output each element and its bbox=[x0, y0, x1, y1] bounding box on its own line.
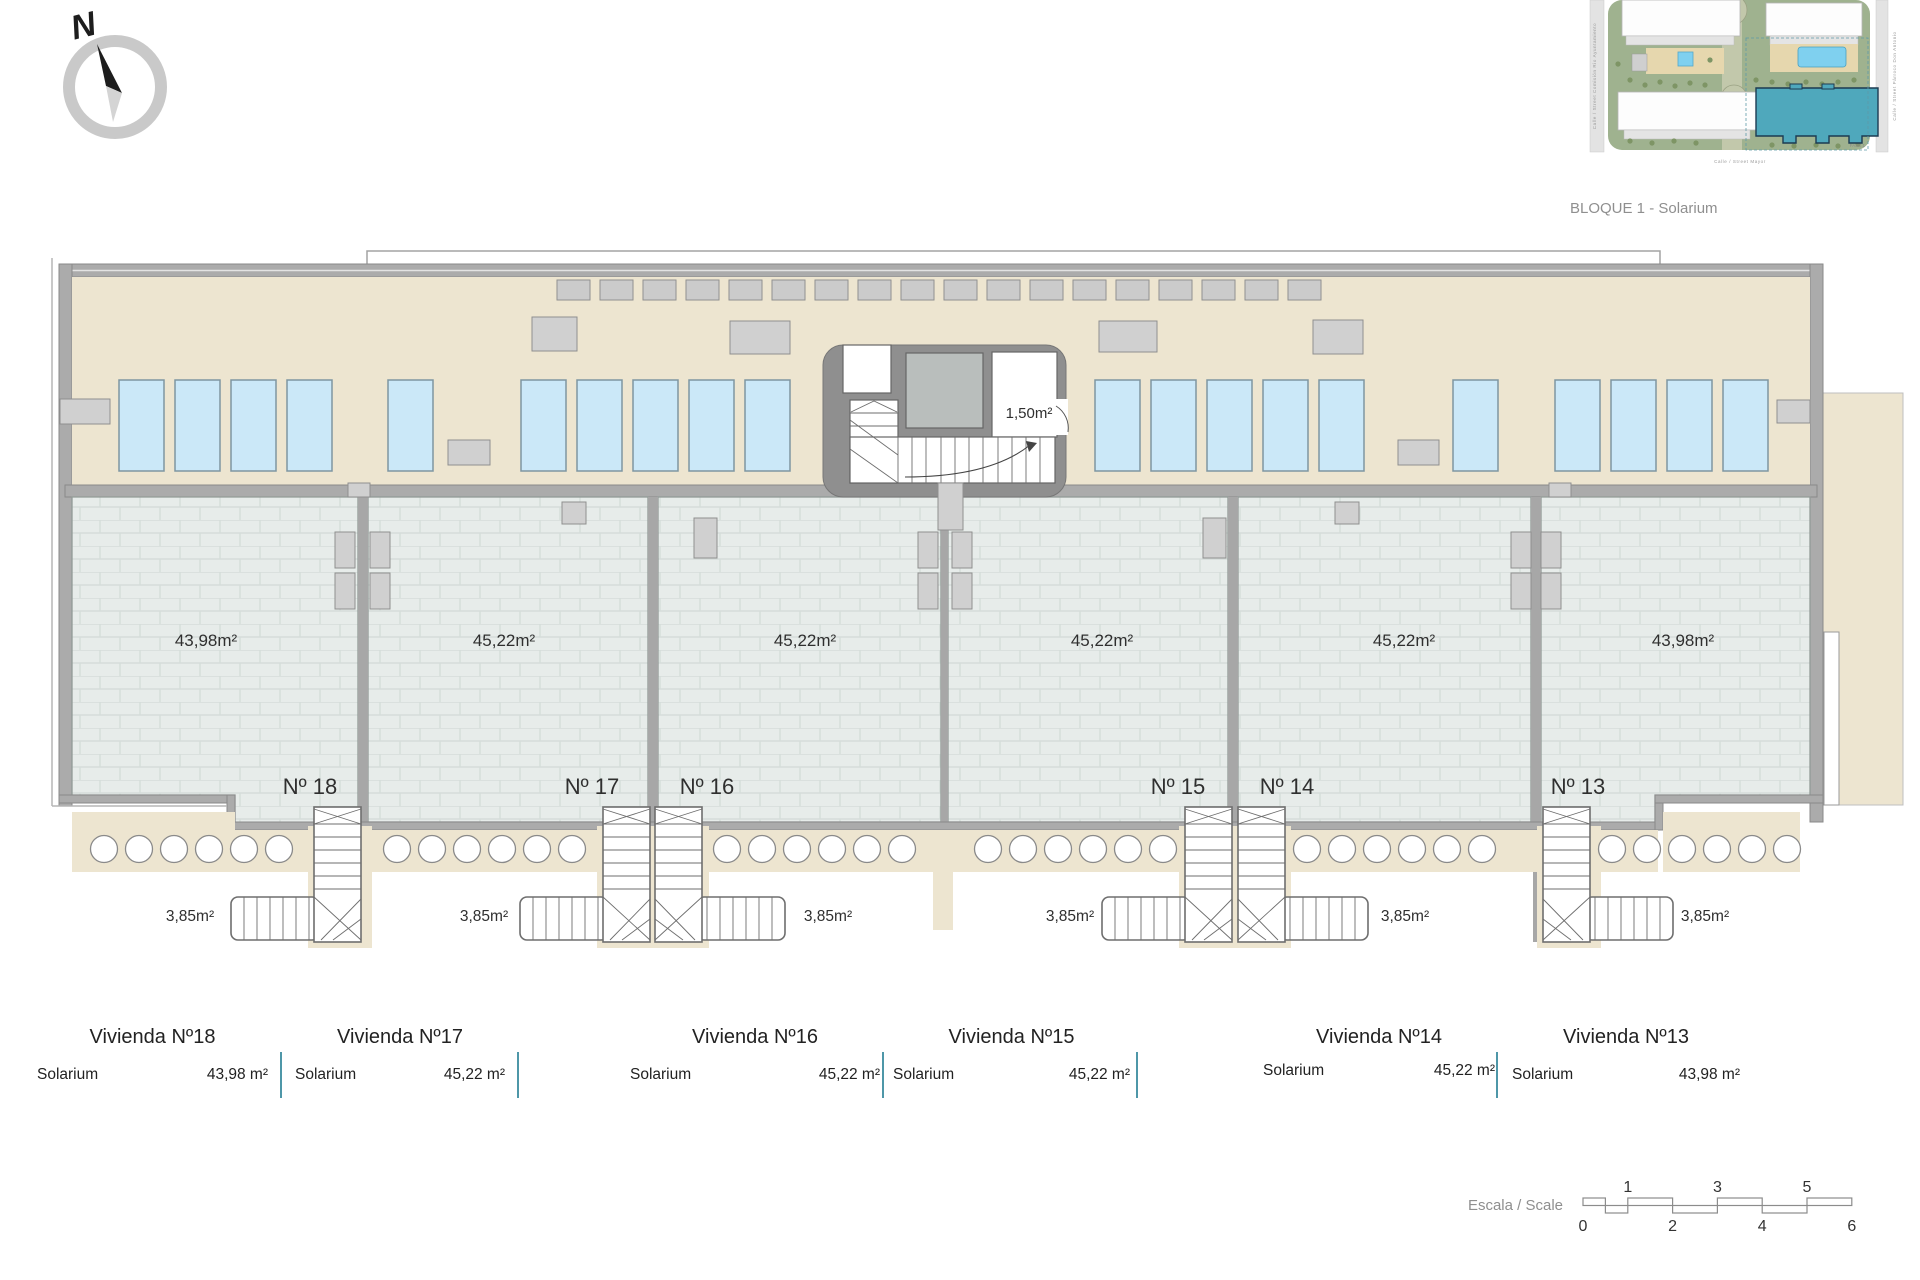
table-divider bbox=[1136, 1052, 1138, 1098]
room-area: 45,22 m² bbox=[444, 1066, 505, 1084]
table-col-vivienda-17: Vivienda Nº17 Solarium 45,22 m² bbox=[295, 1026, 505, 1088]
table-divider bbox=[517, 1052, 519, 1098]
room-label: Solarium bbox=[1512, 1066, 1573, 1084]
scale-bar: Escala / Scale 1 3 5 0 2 4 6 bbox=[1468, 1179, 1856, 1235]
scale-tick: 5 bbox=[1803, 1179, 1812, 1196]
room-area: 43,98 m² bbox=[1679, 1066, 1740, 1084]
north-compass-icon: N bbox=[67, 4, 161, 133]
table-col-vivienda-15: Vivienda Nº15 Solarium 45,22 m² bbox=[893, 1026, 1130, 1088]
vivienda-title: Vivienda Nº14 bbox=[1263, 1026, 1495, 1049]
floor-plan-drawing: N bbox=[0, 0, 1920, 1280]
room-area: 43,98 m² bbox=[207, 1066, 268, 1084]
site-plan-thumbnail: Calle / Street Mayor FASE 1 Calle / Stre… bbox=[1590, 0, 1897, 164]
thumbnail-highlighted-block bbox=[1756, 88, 1878, 143]
stair-area: 3,85m² bbox=[1046, 908, 1094, 925]
room-area: 45,22 m² bbox=[1069, 1066, 1130, 1084]
stair-area: 3,85m² bbox=[166, 908, 214, 925]
street-label-left: Calle / Street Comisión Rio Ayuntamiento bbox=[1592, 23, 1597, 129]
adjacent-terrace bbox=[1823, 393, 1903, 805]
block-caption: BLOQUE 1 - Solarium bbox=[1570, 200, 1830, 217]
area-label: 45,22m² bbox=[1373, 631, 1436, 650]
floor-plan-page: N bbox=[0, 0, 1920, 1280]
scale-tick: 3 bbox=[1713, 1179, 1722, 1196]
vivienda-title: Vivienda Nº16 bbox=[630, 1026, 880, 1049]
scale-label: Escala / Scale bbox=[1468, 1197, 1563, 1214]
area-label: 43,98m² bbox=[1652, 631, 1715, 650]
area-label: 45,22m² bbox=[774, 631, 837, 650]
room-label: Solarium bbox=[893, 1066, 954, 1084]
scale-tick: 0 bbox=[1579, 1218, 1588, 1235]
room-label: Solarium bbox=[630, 1066, 691, 1084]
table-divider bbox=[280, 1052, 282, 1098]
unit-number: Nº 16 bbox=[680, 774, 735, 799]
scale-tick: 1 bbox=[1623, 1179, 1632, 1196]
vivienda-title: Vivienda Nº13 bbox=[1512, 1026, 1740, 1049]
area-label: 43,98m² bbox=[175, 631, 238, 650]
stair-area: 3,85m² bbox=[804, 908, 852, 925]
unit-number: Nº 13 bbox=[1551, 774, 1606, 799]
room-label: Solarium bbox=[37, 1066, 98, 1084]
area-label: 45,22m² bbox=[473, 631, 536, 650]
vivienda-title: Vivienda Nº18 bbox=[37, 1026, 268, 1049]
table-divider bbox=[1496, 1052, 1498, 1098]
unit-number: Nº 17 bbox=[565, 774, 620, 799]
room-label: Solarium bbox=[1263, 1062, 1324, 1080]
stair-area: 3,85m² bbox=[1681, 908, 1729, 925]
table-col-vivienda-14: Vivienda Nº14 Solarium 45,22 m² bbox=[1263, 1026, 1495, 1088]
scale-tick: 2 bbox=[1668, 1218, 1677, 1235]
room-area: 45,22 m² bbox=[1434, 1062, 1495, 1080]
scale-tick: 6 bbox=[1847, 1218, 1856, 1235]
street-label-right: Calle / Street Párroco Don Antonio bbox=[1892, 31, 1897, 120]
vivienda-title: Vivienda Nº17 bbox=[295, 1026, 505, 1049]
unit-number: Nº 15 bbox=[1151, 774, 1206, 799]
vivienda-title: Vivienda Nº15 bbox=[893, 1026, 1130, 1049]
table-col-vivienda-13: Vivienda Nº13 Solarium 43,98 m² bbox=[1512, 1026, 1740, 1088]
table-col-vivienda-16: Vivienda Nº16 Solarium 45,22 m² bbox=[630, 1026, 880, 1088]
scale-tick: 4 bbox=[1758, 1218, 1767, 1235]
table-divider bbox=[882, 1052, 884, 1098]
stair-area: 3,85m² bbox=[1381, 908, 1429, 925]
core-area-label: 1,50m² bbox=[1006, 405, 1053, 422]
unit-number: Nº 18 bbox=[283, 774, 338, 799]
table-col-vivienda-18: Vivienda Nº18 Solarium 43,98 m² bbox=[37, 1026, 268, 1088]
area-label: 45,22m² bbox=[1071, 631, 1134, 650]
street-label-bottom: Calle / Street Mayor bbox=[1714, 159, 1766, 164]
unit-number: Nº 14 bbox=[1260, 774, 1315, 799]
fase-label: FASE 1 bbox=[1850, 143, 1866, 148]
elevator-shaft bbox=[906, 353, 983, 428]
room-area: 45,22 m² bbox=[819, 1066, 880, 1084]
room-label: Solarium bbox=[295, 1066, 356, 1084]
core-room bbox=[992, 352, 1057, 437]
stair-area: 3,85m² bbox=[460, 908, 508, 925]
